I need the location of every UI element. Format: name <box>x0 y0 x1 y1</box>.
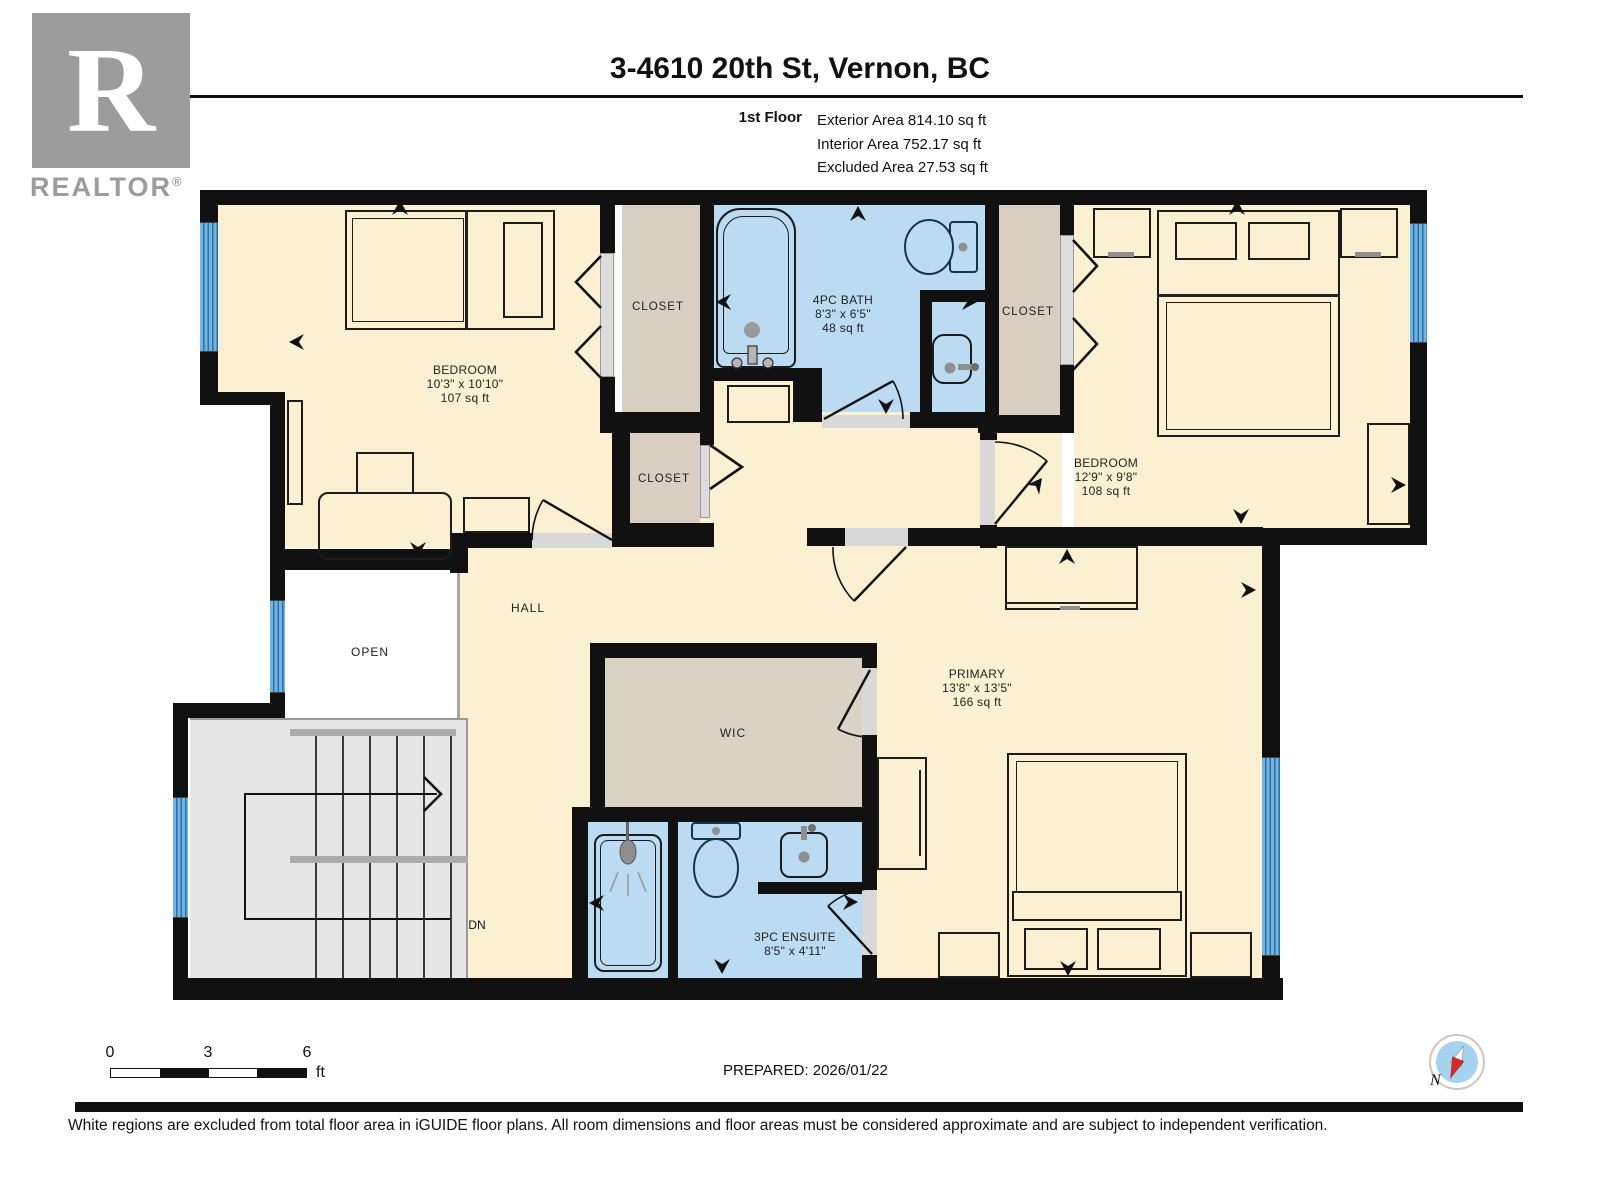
room-dims: 12'9" x 9'8" <box>1074 470 1138 484</box>
wall <box>920 302 932 418</box>
closet3-door-track <box>1060 235 1074 365</box>
wall <box>668 822 678 978</box>
wic-door-threshold <box>862 668 877 735</box>
shower-inner <box>600 840 656 966</box>
hall-label: HALL <box>511 601 545 615</box>
chair <box>356 452 414 494</box>
bedroom1-door-threshold <box>532 533 612 548</box>
open-label: OPEN <box>351 645 389 659</box>
room-name: BEDROOM <box>427 363 504 377</box>
wall <box>807 528 845 546</box>
bed-blanket-bar <box>1012 891 1182 921</box>
bed-pillow <box>1175 222 1237 260</box>
dresser-line <box>919 770 921 856</box>
wall <box>758 882 862 894</box>
closet2-label: CLOSET <box>638 472 690 486</box>
wall <box>985 190 999 433</box>
dresser <box>1005 546 1138 610</box>
room-name: BEDROOM <box>1074 456 1138 470</box>
prepared-date: PREPARED: 2026/01/22 <box>723 1062 888 1079</box>
stair-landing-edge <box>290 856 468 863</box>
excluded-area: Excluded Area 27.53 sq ft <box>817 156 988 180</box>
scale-tick-0: 0 <box>106 1044 115 1062</box>
primary-door-threshold <box>845 528 908 546</box>
bed-mattress <box>1016 761 1178 893</box>
room-dims: 8'5" x 4'11" <box>754 944 836 958</box>
room-name: 4PC BATH <box>813 293 873 307</box>
bed-pillow <box>503 222 543 318</box>
area-summary: Exterior Area 814.10 sq ft Interior Area… <box>817 109 988 180</box>
ensuite-sink <box>780 832 828 878</box>
realtor-logo-icon: R <box>32 13 190 168</box>
bed-pillow <box>1024 928 1088 970</box>
wall <box>1262 956 1280 1000</box>
wall <box>173 703 285 718</box>
bedroom2-door-threshold <box>980 440 995 525</box>
floor-plan-page: { "header": { "title": "3-4610 20th St, … <box>0 0 1600 1200</box>
realtor-logo-text: REALTOR® <box>30 172 184 203</box>
wall <box>600 412 714 433</box>
wall <box>1262 528 1427 545</box>
stairs-down-label: DN <box>468 918 485 932</box>
wall <box>793 368 822 422</box>
wall <box>1262 545 1280 757</box>
shelf <box>287 400 303 505</box>
stair-edge <box>290 729 456 736</box>
bed-mattress <box>352 218 464 322</box>
open-hall-divider <box>457 570 460 718</box>
scale-segment <box>160 1069 209 1077</box>
scale-unit: ft <box>316 1064 325 1082</box>
closet1-label: CLOSET <box>632 300 684 314</box>
compass-face <box>1436 1041 1478 1083</box>
interior-area: Interior Area 752.17 sq ft <box>817 133 988 157</box>
wall <box>572 807 877 822</box>
scale-segment <box>209 1069 258 1077</box>
exterior-area: Exterior Area 814.10 sq ft <box>817 109 988 133</box>
wall <box>200 392 285 405</box>
open-area <box>285 570 457 718</box>
room-area: 166 sq ft <box>942 695 1012 709</box>
wall <box>572 822 588 978</box>
exterior-notch <box>188 405 270 578</box>
wall <box>600 377 615 413</box>
primary-label: PRIMARY 13'8" x 13'5" 166 sq ft <box>942 667 1012 709</box>
scale-segment <box>111 1069 160 1077</box>
dresser-line <box>1005 602 1138 604</box>
wall <box>270 405 285 600</box>
dresser <box>463 497 530 533</box>
linen-cabinet <box>727 385 790 423</box>
wall <box>862 822 877 890</box>
bed-pillow <box>1248 222 1310 260</box>
wall <box>173 978 1283 1000</box>
title-divider <box>75 95 1523 98</box>
wall <box>997 527 1263 546</box>
scale-tick-3: 3 <box>204 1044 213 1062</box>
bed-frame-line <box>465 210 468 330</box>
bed-pillow <box>1097 928 1161 970</box>
closet1-door-track <box>600 253 614 377</box>
wall <box>700 368 795 381</box>
bath-door-threshold <box>822 415 910 428</box>
scale-tick-6: 6 <box>303 1044 312 1062</box>
wall <box>600 190 615 253</box>
wall <box>1410 343 1427 545</box>
wall <box>173 718 188 797</box>
wall <box>205 190 1427 205</box>
scale-bar <box>110 1068 307 1078</box>
nightstand-handle <box>1355 252 1381 257</box>
room-area: 107 sq ft <box>427 391 504 405</box>
wall <box>980 525 997 548</box>
disclaimer-text: White regions are excluded from total fl… <box>68 1117 1528 1135</box>
bedroom2-label: BEDROOM 12'9" x 9'8" 108 sq ft <box>1074 456 1138 498</box>
bedroom2-entry-floor <box>992 433 1062 528</box>
bathtub-inner <box>723 216 789 354</box>
nightstand <box>1190 932 1252 978</box>
room-dims: 13'8" x 13'5" <box>942 681 1012 695</box>
wall <box>700 190 714 433</box>
dresser-handle <box>1060 606 1080 610</box>
room-area: 48 sq ft <box>813 321 873 335</box>
wall <box>1060 190 1074 235</box>
wall <box>920 290 986 302</box>
hall-floor-wic-top <box>605 548 877 643</box>
wall <box>700 433 714 445</box>
ensuite-label: 3PC ENSUITE 8'5" x 4'11" <box>754 930 836 958</box>
compass-needle <box>1437 1042 1477 1082</box>
wall <box>862 955 877 978</box>
window <box>200 222 218 352</box>
room-name: PRIMARY <box>942 667 1012 681</box>
compass-north-label: N <box>1430 1072 1441 1090</box>
wic-label: WIC <box>720 726 746 740</box>
bath-sink <box>932 334 972 384</box>
bed-blanket-line <box>1157 294 1340 297</box>
closet3-label: CLOSET <box>1002 305 1054 319</box>
page-title: 3-4610 20th St, Vernon, BC <box>610 52 990 86</box>
registered-mark: ® <box>172 174 184 189</box>
bath-label: 4PC BATH 8'3" x 6'5" 48 sq ft <box>813 293 873 335</box>
room-dims: 10'3" x 10'10" <box>427 377 504 391</box>
nightstand <box>938 932 1000 978</box>
window <box>1262 757 1280 956</box>
floor-label: 1st Floor <box>660 109 802 126</box>
wall <box>980 412 997 440</box>
wall <box>1410 205 1427 223</box>
room-dims: 8'3" x 6'5" <box>813 307 873 321</box>
bedroom1-label: BEDROOM 10'3" x 10'10" 107 sq ft <box>427 363 504 405</box>
footer-divider <box>75 1102 1523 1112</box>
wall <box>908 528 980 546</box>
window <box>1410 223 1427 343</box>
nightstand-handle <box>1108 252 1134 257</box>
ensuite-door-threshold <box>862 890 877 955</box>
wall <box>612 523 714 547</box>
stair-treads-lower <box>290 863 468 978</box>
realtor-logo-letter: R <box>67 30 155 152</box>
desk <box>1367 423 1410 525</box>
room-name: 3PC ENSUITE <box>754 930 836 944</box>
stair-treads-upper <box>290 736 455 856</box>
nightstand <box>1093 208 1151 258</box>
window <box>173 797 188 918</box>
bed-mattress <box>1166 302 1331 430</box>
window <box>270 600 285 693</box>
nightstand <box>1340 208 1398 258</box>
scale-segment <box>257 1069 306 1077</box>
closet2-door-track <box>700 445 710 518</box>
room-area: 108 sq ft <box>1074 484 1138 498</box>
desk <box>318 492 452 560</box>
